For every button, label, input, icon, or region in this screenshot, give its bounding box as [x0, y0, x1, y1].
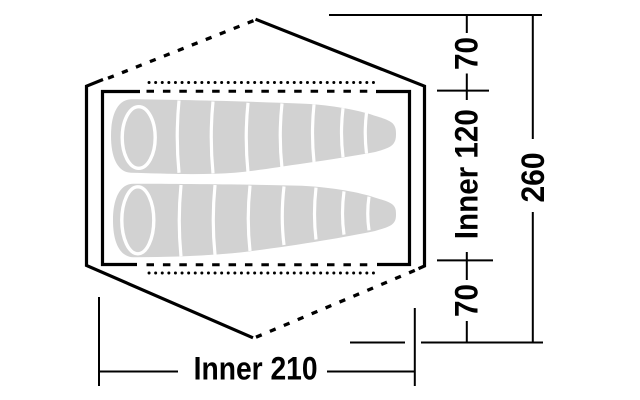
svg-text:Inner 210: Inner 210	[194, 351, 318, 387]
svg-text:Inner 120: Inner 120	[449, 109, 485, 239]
svg-text:70: 70	[449, 37, 485, 70]
svg-text:70: 70	[449, 284, 485, 317]
svg-text:260: 260	[515, 153, 551, 203]
